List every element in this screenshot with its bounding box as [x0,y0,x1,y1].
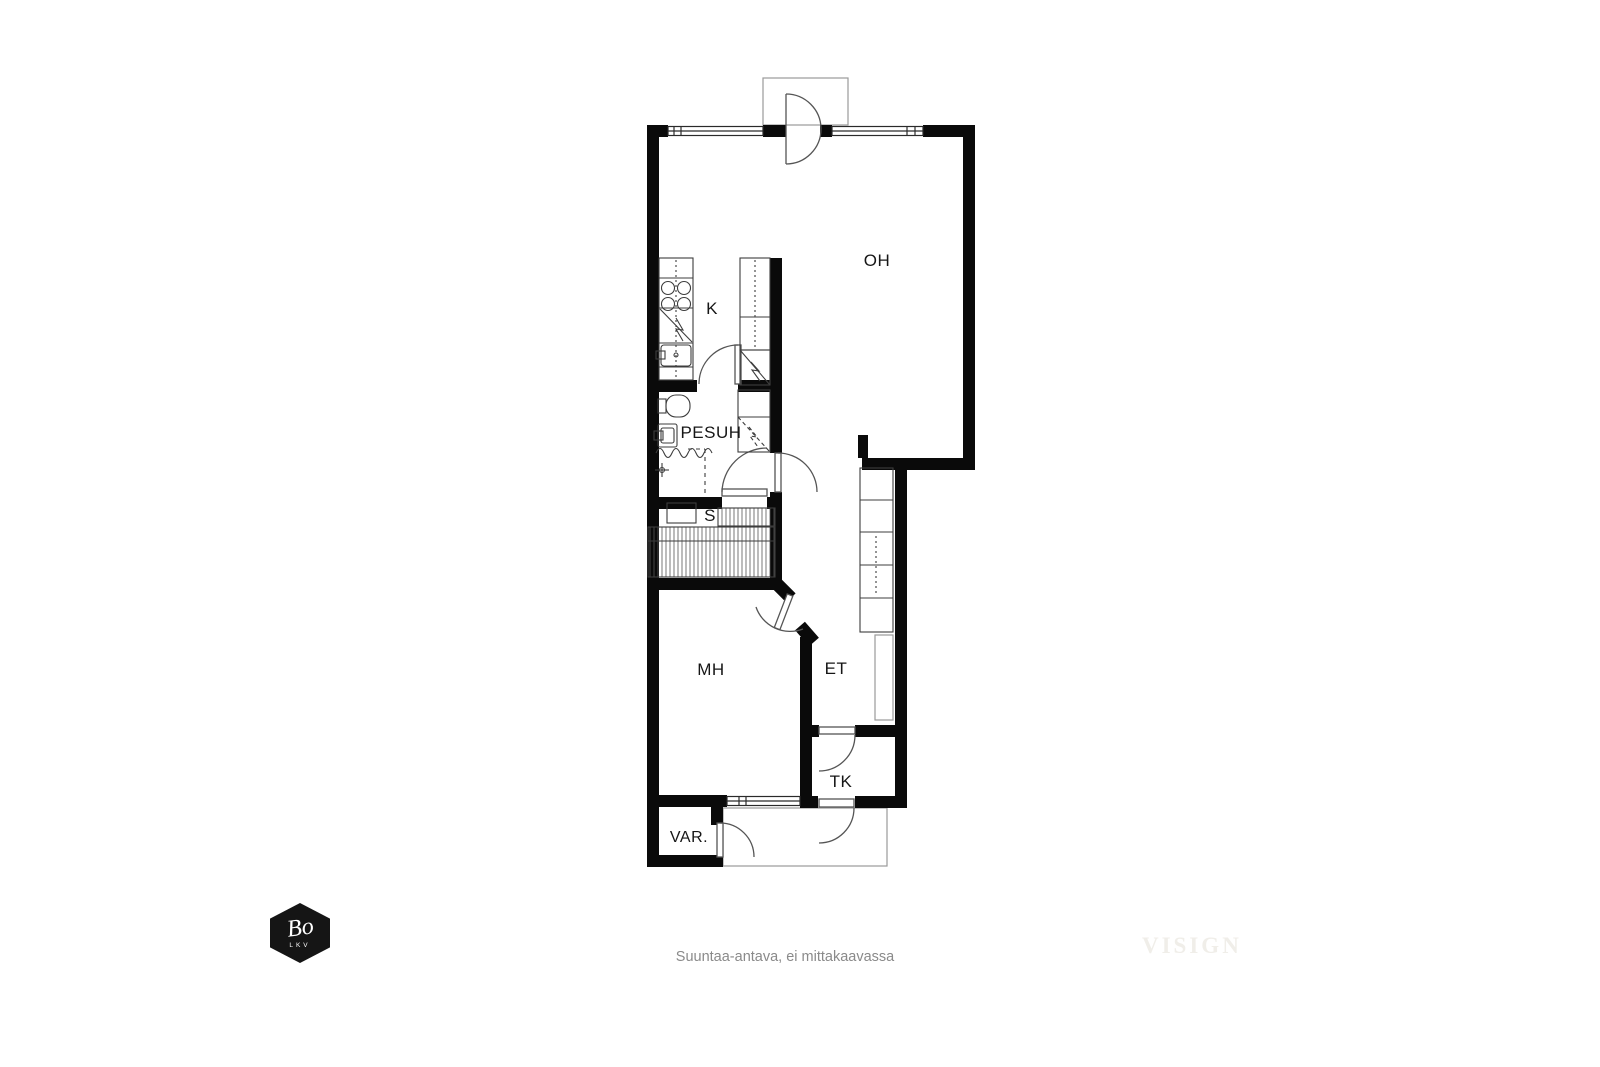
wall-tk-top-1 [812,725,819,737]
room-label-pesuh: PESUH [680,423,741,442]
wall-tk-bottom-2 [855,796,907,808]
brand-logo-name: Bo [285,916,314,940]
doors [699,94,855,857]
wall-mh-et-divider [800,637,812,808]
kitchen-fixtures [656,258,770,385]
wall-mh-bottom-1 [647,795,727,807]
wall-right-lower [895,458,907,808]
wall-stub [858,435,868,458]
wall-var-bottom [647,855,723,867]
wall-pesuh-sauna-2 [767,497,782,509]
toilet-icon [658,395,690,417]
page-canvas: OH K PESUH S MH ET TK VAR. Bo LKV Suunta… [0,0,1600,1067]
window-top-right [832,127,923,136]
room-label-var: VAR. [670,829,708,846]
hall-railing [875,635,893,720]
dishwasher-icon [660,309,692,342]
room-label-tk: TK [830,772,853,791]
window-mh [727,797,800,806]
fridge-icon [740,350,770,385]
wall-top-3 [820,125,832,137]
room-label-k: K [706,299,718,318]
tk-door [819,727,855,771]
sauna-bench-upper [718,508,775,526]
brand-logo-subtitle: LKV [289,942,310,949]
balcony-door [786,94,821,164]
balcony-outline [763,78,848,125]
wall-mh-bottom-2 [800,795,812,807]
wall-left [647,125,659,867]
laundry-water-line [656,449,712,458]
walls [647,125,975,867]
wall-kitchen-divider [770,258,782,392]
wall-var-right [711,807,723,825]
wall-tk-top-2 [855,725,895,737]
pesuh-door [775,453,817,492]
pesuh-fixtures [654,390,770,495]
kitchen-sink-icon [656,345,691,366]
window-top-left [668,127,763,136]
wardrobe-icon [860,468,893,632]
wall-top-2 [763,125,786,137]
room-label-oh: OH [864,251,891,270]
entrance-door [819,799,854,843]
room-label-mh: MH [697,660,724,679]
wall-kitchen-bottom-1 [647,380,697,392]
water-heater-icon [738,390,770,452]
room-label-et: ET [825,659,848,678]
sauna-bench-lower [648,527,775,577]
var-door [717,823,754,857]
mh-door [756,594,803,631]
wall-sauna-bottom [647,578,778,590]
disclaimer-text: Suuntaa-antava, ei mittakaavassa [585,949,985,965]
sauna-door [722,448,767,496]
visign-watermark: VISIGN [1142,933,1242,959]
wall-pesuh-right-1 [770,392,782,453]
tall-cabinet-icon [740,258,770,350]
room-label-s: S [704,506,716,525]
washbasin-icon [654,424,677,447]
wall-right [963,125,975,470]
kitchen-door [699,345,741,384]
floor-plan: OH K PESUH S MH ET TK VAR. [0,0,1600,1067]
